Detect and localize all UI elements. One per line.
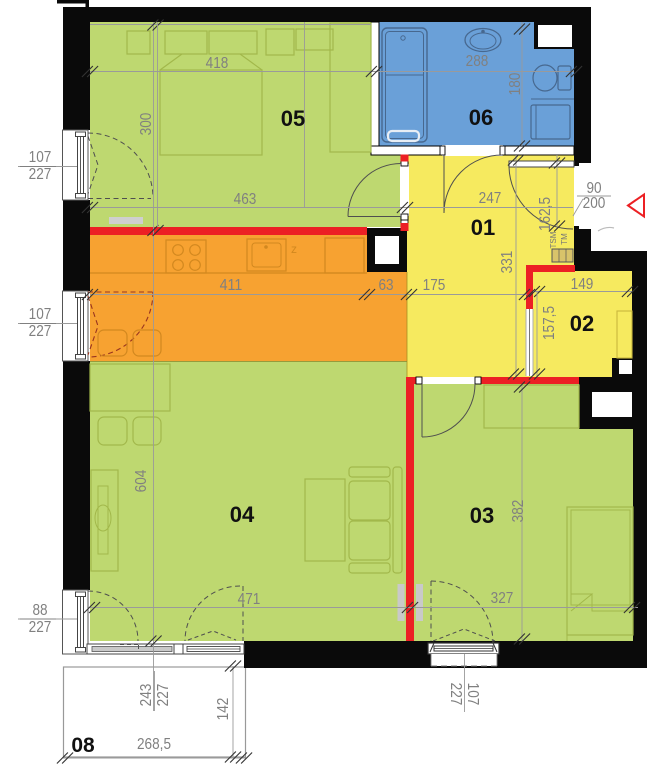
svg-text:227: 227 — [29, 166, 52, 183]
svg-text:247: 247 — [479, 190, 502, 207]
svg-text:88: 88 — [32, 602, 47, 619]
svg-text:06: 06 — [469, 105, 493, 130]
svg-text:63: 63 — [378, 277, 393, 294]
svg-text:227: 227 — [447, 683, 464, 706]
svg-text:03: 03 — [470, 503, 494, 528]
svg-text:331: 331 — [499, 251, 516, 274]
svg-text:200: 200 — [583, 195, 606, 212]
svg-text:180: 180 — [507, 73, 524, 96]
svg-text:243: 243 — [138, 684, 155, 707]
svg-text:227: 227 — [155, 684, 172, 707]
svg-text:142: 142 — [215, 698, 232, 721]
svg-text:08: 08 — [71, 734, 95, 757]
svg-text:411: 411 — [220, 277, 243, 294]
svg-text:04: 04 — [230, 502, 255, 527]
svg-text:149: 149 — [571, 276, 594, 293]
svg-text:382: 382 — [510, 500, 527, 523]
svg-text:300: 300 — [138, 113, 155, 136]
svg-text:227: 227 — [29, 619, 52, 636]
svg-text:227: 227 — [29, 323, 52, 340]
svg-text:05: 05 — [281, 106, 305, 131]
svg-text:TSM: TSM — [549, 231, 558, 248]
svg-text:604: 604 — [133, 470, 150, 493]
svg-text:268,5: 268,5 — [137, 736, 171, 753]
svg-text:107: 107 — [464, 683, 481, 706]
svg-text:175: 175 — [423, 277, 446, 294]
svg-text:327: 327 — [491, 590, 514, 607]
svg-text:288: 288 — [466, 53, 489, 70]
svg-text:418: 418 — [206, 55, 229, 72]
svg-text:157,5: 157,5 — [541, 306, 558, 340]
svg-text:107: 107 — [29, 149, 52, 166]
svg-text:471: 471 — [238, 591, 261, 608]
svg-text:z: z — [291, 242, 297, 256]
svg-text:162,5: 162,5 — [537, 197, 554, 231]
svg-text:02: 02 — [570, 311, 594, 336]
svg-text:107: 107 — [29, 306, 52, 323]
svg-text:TM: TM — [560, 233, 569, 245]
svg-text:463: 463 — [234, 191, 257, 208]
svg-text:01: 01 — [471, 215, 495, 240]
